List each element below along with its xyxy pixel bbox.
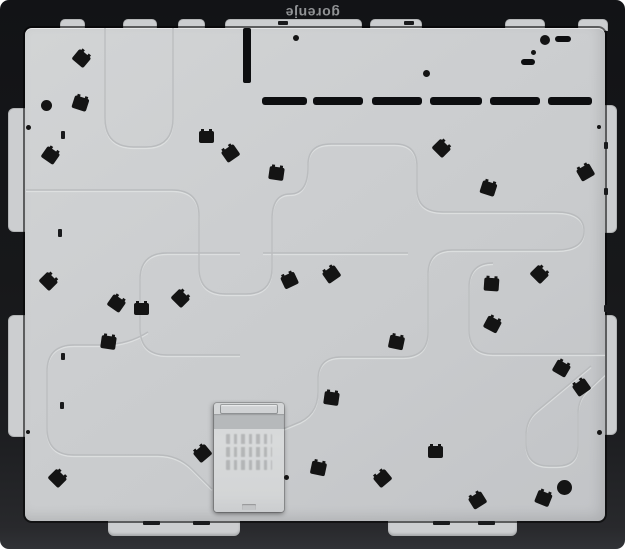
junction-box-band xyxy=(214,414,284,429)
sheet-metal-base-panel xyxy=(25,28,605,521)
stamped-channel-pattern xyxy=(25,28,605,521)
bottom-tab-slot xyxy=(478,521,495,525)
mains-junction-box xyxy=(214,403,284,512)
bottom-tab-slot xyxy=(143,521,160,525)
cooktop-glass-frame: gorenje xyxy=(0,0,625,549)
junction-box-notch xyxy=(242,504,256,510)
product-photo-cooktop-underside: gorenje xyxy=(0,0,625,549)
bottom-tab-slot xyxy=(433,521,450,525)
junction-box-embossed-text xyxy=(226,447,272,457)
brand-logotype: gorenje xyxy=(0,3,625,23)
junction-box-rail xyxy=(220,404,278,414)
junction-box-embossed-text xyxy=(226,460,272,470)
bottom-tab-slot xyxy=(193,521,210,525)
junction-box-embossed-text xyxy=(226,434,272,444)
